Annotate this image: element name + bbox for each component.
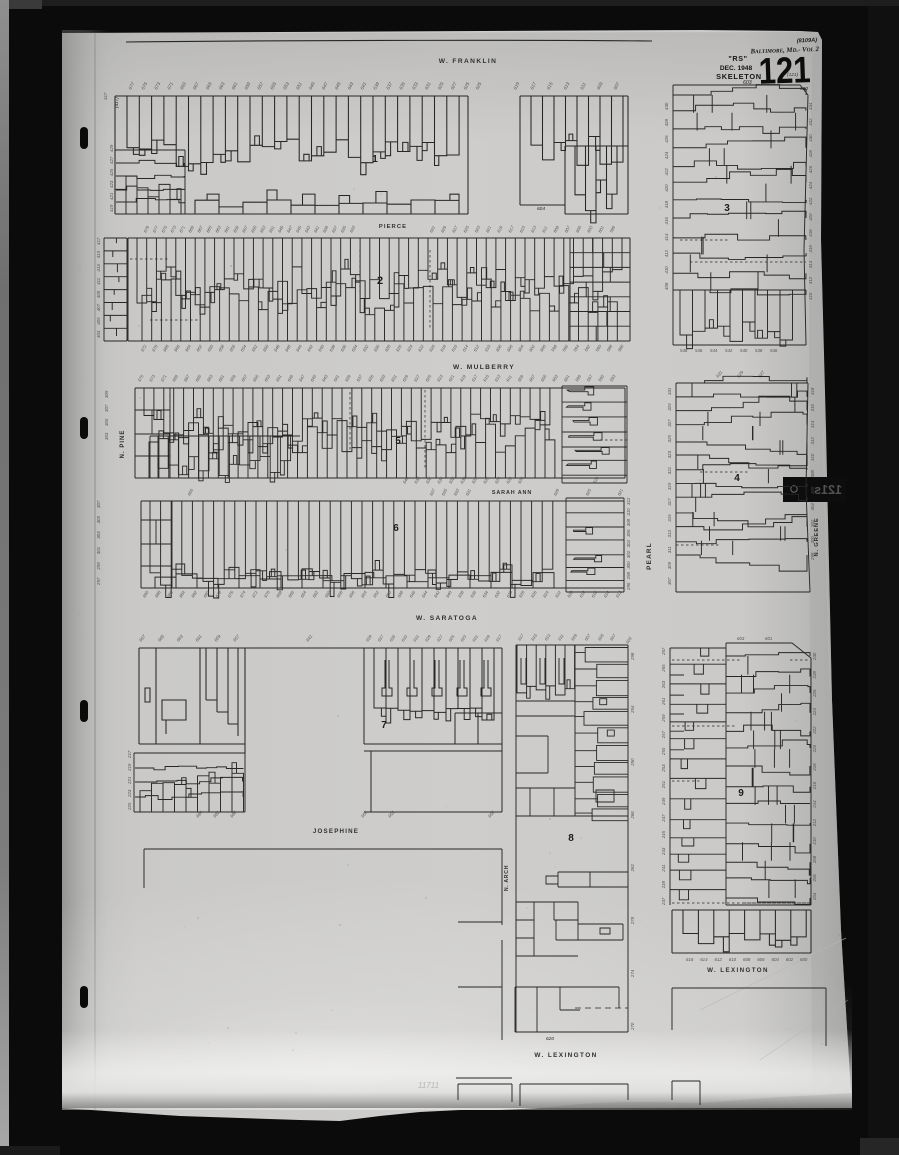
svg-text:429: 429 xyxy=(109,144,114,152)
svg-text:625: 625 xyxy=(462,81,470,91)
svg-text:635: 635 xyxy=(398,81,406,91)
svg-text:588: 588 xyxy=(606,343,614,352)
svg-text:661: 661 xyxy=(223,225,231,234)
svg-text:668: 668 xyxy=(162,343,170,352)
svg-text:656: 656 xyxy=(348,589,356,598)
svg-text:609: 609 xyxy=(596,81,604,91)
svg-text:613: 613 xyxy=(494,373,502,382)
svg-text:297: 297 xyxy=(96,577,101,586)
svg-text:542: 542 xyxy=(725,348,733,353)
svg-text:611: 611 xyxy=(557,633,565,641)
svg-text:321: 321 xyxy=(667,466,672,474)
svg-text:661: 661 xyxy=(217,374,225,383)
svg-text:616: 616 xyxy=(686,957,694,962)
svg-text:247: 247 xyxy=(661,814,666,823)
svg-text:637: 637 xyxy=(377,633,385,642)
svg-text:623: 623 xyxy=(473,224,481,233)
svg-text:621: 621 xyxy=(616,488,624,497)
svg-text:307: 307 xyxy=(667,577,672,585)
svg-text:278: 278 xyxy=(630,916,635,925)
svg-text:412: 412 xyxy=(808,276,813,284)
svg-text:W. SARATOGA: W. SARATOGA xyxy=(416,615,478,622)
svg-text:249: 249 xyxy=(661,797,666,806)
svg-text:599: 599 xyxy=(608,224,616,233)
svg-text:309: 309 xyxy=(104,390,109,398)
svg-text:678: 678 xyxy=(214,589,222,598)
svg-text:640: 640 xyxy=(445,589,453,598)
svg-text:430: 430 xyxy=(664,102,669,110)
svg-text:405: 405 xyxy=(96,317,101,325)
svg-text:651: 651 xyxy=(295,81,303,91)
svg-text:630: 630 xyxy=(373,343,381,352)
svg-text:403: 403 xyxy=(96,330,101,338)
svg-text:627: 627 xyxy=(757,369,766,378)
svg-text:636: 636 xyxy=(469,589,477,598)
svg-text:586: 586 xyxy=(617,343,625,352)
svg-text:308: 308 xyxy=(626,518,631,526)
svg-text:312: 312 xyxy=(626,497,631,505)
svg-text:661: 661 xyxy=(231,81,239,91)
svg-text:7: 7 xyxy=(381,720,387,731)
svg-text:635: 635 xyxy=(440,487,448,496)
svg-text:432: 432 xyxy=(808,118,813,126)
svg-text:680: 680 xyxy=(229,809,238,818)
svg-text:649: 649 xyxy=(308,81,316,91)
svg-text:3: 3 xyxy=(724,203,730,214)
svg-text:650: 650 xyxy=(262,343,270,352)
svg-text:659: 659 xyxy=(213,633,222,642)
svg-text:607: 607 xyxy=(563,224,571,233)
svg-text:204: 204 xyxy=(812,892,817,901)
svg-text:624: 624 xyxy=(494,475,502,484)
svg-text:W. LEXINGTON: W. LEXINGTON xyxy=(534,1052,597,1059)
svg-text:628: 628 xyxy=(518,589,526,598)
svg-text:409: 409 xyxy=(96,290,101,298)
svg-text:620: 620 xyxy=(546,1036,554,1042)
svg-text:644: 644 xyxy=(421,589,429,598)
svg-text:619: 619 xyxy=(512,81,520,91)
svg-text:651: 651 xyxy=(275,374,283,383)
svg-text:DEC. 1948: DEC. 1948 xyxy=(720,65,753,72)
svg-text:662: 662 xyxy=(311,589,319,598)
svg-text:672: 672 xyxy=(140,343,148,352)
svg-text:421: 421 xyxy=(109,192,114,200)
svg-text:671: 671 xyxy=(178,225,186,234)
svg-text:633: 633 xyxy=(400,633,408,642)
svg-text:310: 310 xyxy=(626,508,631,516)
svg-text:426: 426 xyxy=(664,135,669,143)
svg-text:299: 299 xyxy=(96,562,101,571)
svg-text:686: 686 xyxy=(166,589,174,598)
svg-text:612: 612 xyxy=(715,957,723,962)
svg-text:424: 424 xyxy=(808,181,813,189)
svg-text:653: 653 xyxy=(282,81,290,91)
svg-text:656: 656 xyxy=(360,809,369,818)
svg-text:294: 294 xyxy=(630,705,635,714)
svg-text:645: 645 xyxy=(295,224,303,233)
svg-text:657: 657 xyxy=(240,373,248,382)
svg-text:624: 624 xyxy=(542,589,550,598)
svg-text:651: 651 xyxy=(268,225,276,234)
svg-text:W. MULBERRY: W. MULBERRY xyxy=(453,364,515,371)
svg-text:655: 655 xyxy=(252,373,260,382)
svg-text:300: 300 xyxy=(810,536,815,544)
svg-text:669: 669 xyxy=(171,373,179,382)
svg-text:605: 605 xyxy=(597,632,605,641)
svg-text:303: 303 xyxy=(96,531,101,539)
svg-text:642: 642 xyxy=(433,589,441,598)
svg-text:613: 613 xyxy=(562,81,570,91)
svg-text:633: 633 xyxy=(411,81,419,91)
svg-text:11711: 11711 xyxy=(418,1081,439,1090)
svg-text:548: 548 xyxy=(680,348,688,353)
svg-text:620: 620 xyxy=(517,475,525,484)
svg-text:654: 654 xyxy=(239,343,247,352)
svg-text:W. LEXINGTON: W. LEXINGTON xyxy=(707,967,769,974)
svg-text:413: 413 xyxy=(96,264,101,272)
svg-text:607: 607 xyxy=(609,632,617,641)
svg-text:670: 670 xyxy=(263,589,271,598)
svg-text:639: 639 xyxy=(322,224,330,233)
svg-text:670: 670 xyxy=(151,343,159,352)
svg-text:631: 631 xyxy=(412,634,420,643)
svg-text:263: 263 xyxy=(661,680,666,689)
svg-text:325: 325 xyxy=(667,435,672,443)
svg-text:601: 601 xyxy=(765,636,773,641)
svg-text:625: 625 xyxy=(474,81,482,91)
svg-text:667: 667 xyxy=(196,224,204,233)
svg-text:665: 665 xyxy=(205,81,213,91)
svg-text:420: 420 xyxy=(808,213,813,221)
svg-text:629: 629 xyxy=(552,487,560,496)
svg-text:304: 304 xyxy=(626,540,631,548)
svg-text:626: 626 xyxy=(530,589,538,598)
svg-text:654: 654 xyxy=(360,589,368,598)
svg-text:657: 657 xyxy=(241,224,249,233)
svg-text:603: 603 xyxy=(737,636,745,641)
svg-text:PIERCE: PIERCE xyxy=(379,224,407,230)
svg-text:621: 621 xyxy=(471,634,479,643)
svg-text:602: 602 xyxy=(786,957,794,962)
svg-text:331: 331 xyxy=(667,387,672,395)
svg-text:420: 420 xyxy=(664,184,669,192)
svg-text:673: 673 xyxy=(148,373,156,382)
svg-text:614: 614 xyxy=(461,343,469,352)
svg-text:658: 658 xyxy=(336,589,344,598)
svg-text:690: 690 xyxy=(142,589,150,598)
svg-text:657: 657 xyxy=(232,633,241,642)
svg-text:536: 536 xyxy=(770,348,778,353)
svg-text:647: 647 xyxy=(286,224,294,233)
svg-text:640: 640 xyxy=(402,475,410,484)
svg-text:592: 592 xyxy=(583,343,591,352)
svg-text:609: 609 xyxy=(517,373,525,382)
svg-text:622: 622 xyxy=(417,343,425,352)
svg-text:224: 224 xyxy=(812,708,817,717)
svg-text:665: 665 xyxy=(205,224,213,233)
svg-text:603: 603 xyxy=(586,224,594,233)
svg-text:614: 614 xyxy=(700,957,708,962)
svg-text:265: 265 xyxy=(661,664,666,673)
svg-text:631: 631 xyxy=(715,369,724,378)
svg-text:310: 310 xyxy=(810,453,815,461)
svg-text:684: 684 xyxy=(195,809,204,818)
svg-text:430: 430 xyxy=(808,134,813,142)
svg-text:241: 241 xyxy=(661,864,666,873)
svg-text:590: 590 xyxy=(594,343,602,352)
svg-text:649: 649 xyxy=(286,373,294,382)
svg-text:639: 639 xyxy=(344,373,352,382)
svg-text:632: 632 xyxy=(493,589,501,598)
svg-text:598: 598 xyxy=(550,343,558,352)
svg-text:652: 652 xyxy=(387,809,396,818)
svg-text:206: 206 xyxy=(812,874,817,883)
svg-text:243: 243 xyxy=(661,847,666,856)
svg-text:408: 408 xyxy=(664,282,669,290)
svg-text:604: 604 xyxy=(517,343,525,352)
svg-text:634: 634 xyxy=(350,343,358,352)
svg-text:626: 626 xyxy=(395,343,403,352)
svg-text:307: 307 xyxy=(104,404,109,412)
svg-text:607: 607 xyxy=(612,81,620,91)
svg-text:596: 596 xyxy=(561,343,569,352)
svg-text:620: 620 xyxy=(566,589,574,598)
svg-text:636: 636 xyxy=(339,343,347,352)
svg-text:626: 626 xyxy=(482,475,490,484)
svg-text:230: 230 xyxy=(812,652,817,661)
svg-text:303: 303 xyxy=(104,432,109,440)
svg-text:411: 411 xyxy=(96,277,101,285)
svg-text:305: 305 xyxy=(104,418,109,426)
svg-text:407: 407 xyxy=(96,304,101,312)
svg-text:631: 631 xyxy=(390,374,398,383)
svg-text:257: 257 xyxy=(661,730,666,739)
svg-text:4: 4 xyxy=(734,473,740,484)
svg-text:317: 317 xyxy=(667,498,672,506)
svg-text:663: 663 xyxy=(218,81,226,91)
svg-text:663: 663 xyxy=(206,373,214,382)
svg-text:676: 676 xyxy=(227,589,235,598)
svg-text:9: 9 xyxy=(738,788,744,799)
svg-text:W. FRANKLIN: W. FRANKLIN xyxy=(439,58,498,65)
svg-text:315: 315 xyxy=(667,514,672,522)
svg-text:662: 662 xyxy=(195,343,203,352)
svg-text:682: 682 xyxy=(212,809,221,818)
svg-text:414: 414 xyxy=(808,260,813,268)
svg-text:610: 610 xyxy=(729,957,737,962)
svg-text:N. PINE: N. PINE xyxy=(120,430,126,459)
svg-text:593: 593 xyxy=(609,373,617,382)
svg-text:597: 597 xyxy=(586,373,594,382)
svg-text:647: 647 xyxy=(298,373,306,382)
svg-text:639: 639 xyxy=(365,633,373,642)
svg-text:251: 251 xyxy=(661,780,666,789)
svg-text:621: 621 xyxy=(485,225,493,234)
svg-text:642: 642 xyxy=(306,343,314,352)
svg-text:255: 255 xyxy=(661,747,666,756)
svg-text:300: 300 xyxy=(626,561,631,569)
svg-text:422: 422 xyxy=(808,197,813,205)
svg-text:641: 641 xyxy=(359,81,367,91)
svg-text:622: 622 xyxy=(554,589,562,598)
svg-text:637: 637 xyxy=(428,487,436,496)
svg-text:306: 306 xyxy=(626,529,631,537)
svg-text:544: 544 xyxy=(710,348,718,353)
svg-text:SARAH ANN: SARAH ANN xyxy=(492,490,532,496)
svg-text:618: 618 xyxy=(578,589,586,598)
svg-text:417: 417 xyxy=(96,237,101,245)
svg-text:312: 312 xyxy=(810,437,815,445)
svg-text:410: 410 xyxy=(808,292,813,300)
svg-text:629: 629 xyxy=(736,369,745,378)
svg-text:314: 314 xyxy=(810,420,815,428)
svg-text:680: 680 xyxy=(202,589,210,598)
svg-text:305: 305 xyxy=(96,516,101,524)
svg-text:616: 616 xyxy=(590,589,598,598)
svg-text:606: 606 xyxy=(506,343,514,352)
svg-text:(417): (417) xyxy=(114,97,119,108)
svg-text:2: 2 xyxy=(377,275,383,287)
svg-text:601: 601 xyxy=(563,374,571,383)
svg-text:425: 425 xyxy=(109,168,114,176)
svg-text:657: 657 xyxy=(256,81,264,91)
svg-text:615: 615 xyxy=(546,81,554,91)
svg-text:306: 306 xyxy=(810,486,815,494)
svg-text:327: 327 xyxy=(667,419,672,427)
svg-text:643: 643 xyxy=(346,81,354,91)
svg-text:633: 633 xyxy=(348,224,356,233)
svg-text:422: 422 xyxy=(664,168,669,176)
svg-text:646: 646 xyxy=(408,589,416,598)
svg-text:638: 638 xyxy=(413,475,421,484)
svg-text:627: 627 xyxy=(450,81,458,91)
svg-text:603: 603 xyxy=(551,373,559,382)
svg-text:SKELETON: SKELETON xyxy=(716,72,762,81)
svg-text:627: 627 xyxy=(451,224,459,233)
svg-text:424: 424 xyxy=(664,151,669,159)
svg-text:679: 679 xyxy=(142,224,150,233)
svg-text:434: 434 xyxy=(808,102,813,110)
svg-text:602: 602 xyxy=(528,343,536,352)
svg-text:656: 656 xyxy=(228,343,236,352)
svg-text:412: 412 xyxy=(664,249,669,257)
svg-text:641: 641 xyxy=(305,633,314,642)
svg-text:609: 609 xyxy=(570,632,578,641)
svg-text:428: 428 xyxy=(808,150,813,158)
svg-text:634: 634 xyxy=(436,475,444,484)
svg-text:641: 641 xyxy=(332,374,340,383)
svg-text:631: 631 xyxy=(428,225,436,234)
svg-text:418: 418 xyxy=(664,200,669,208)
svg-text:221: 221 xyxy=(127,776,132,785)
svg-text:416: 416 xyxy=(664,217,669,225)
svg-text:302: 302 xyxy=(810,519,815,527)
svg-text:237: 237 xyxy=(661,897,666,906)
svg-text:600: 600 xyxy=(800,957,808,962)
svg-text:210: 210 xyxy=(812,837,817,846)
svg-text:616: 616 xyxy=(450,343,458,352)
svg-text:1: 1 xyxy=(372,154,378,165)
svg-text:607: 607 xyxy=(528,373,536,382)
svg-text:675: 675 xyxy=(160,224,168,233)
svg-text:667: 667 xyxy=(183,373,191,382)
svg-text:667: 667 xyxy=(192,81,200,91)
svg-text:653: 653 xyxy=(263,373,271,382)
svg-text:628: 628 xyxy=(384,343,392,352)
svg-text:649: 649 xyxy=(277,224,285,233)
svg-text:223: 223 xyxy=(127,789,132,798)
svg-text:546: 546 xyxy=(695,348,703,353)
svg-text:307: 307 xyxy=(96,500,101,508)
svg-text:419: 419 xyxy=(109,204,114,212)
svg-text:623: 623 xyxy=(436,373,444,382)
svg-text:644: 644 xyxy=(295,343,303,352)
svg-text:617: 617 xyxy=(507,224,515,233)
svg-text:671: 671 xyxy=(160,374,168,383)
svg-text:628: 628 xyxy=(471,475,479,484)
svg-text:N. ARCH: N. ARCH xyxy=(504,865,510,891)
svg-text:621: 621 xyxy=(447,374,455,383)
svg-text:301: 301 xyxy=(96,546,101,554)
svg-text:645: 645 xyxy=(309,373,317,382)
svg-text:302: 302 xyxy=(626,550,631,558)
svg-text:423: 423 xyxy=(109,180,114,188)
svg-text:673: 673 xyxy=(153,81,161,91)
svg-text:675: 675 xyxy=(137,373,145,382)
svg-text:650: 650 xyxy=(487,809,496,818)
svg-text:663: 663 xyxy=(176,633,185,642)
svg-text:6: 6 xyxy=(393,523,399,534)
svg-text:613: 613 xyxy=(530,224,538,233)
svg-text:"RS": "RS" xyxy=(728,54,747,63)
svg-text:611: 611 xyxy=(505,374,513,382)
svg-text:282: 282 xyxy=(630,864,635,873)
svg-text:629: 629 xyxy=(440,224,448,233)
svg-text:428: 428 xyxy=(664,119,669,127)
svg-text:286: 286 xyxy=(630,811,635,820)
svg-text:675: 675 xyxy=(140,81,148,91)
svg-text:313: 313 xyxy=(667,530,672,538)
svg-text:222: 222 xyxy=(812,726,817,735)
svg-text:655: 655 xyxy=(269,81,277,91)
svg-text:669: 669 xyxy=(187,224,195,233)
svg-text:665: 665 xyxy=(157,633,166,642)
svg-text:600: 600 xyxy=(539,343,547,352)
svg-text:647: 647 xyxy=(321,81,329,91)
svg-text:316: 316 xyxy=(810,404,815,412)
svg-text:613: 613 xyxy=(543,632,551,641)
svg-text:426: 426 xyxy=(808,165,813,173)
svg-text:619: 619 xyxy=(496,224,504,233)
svg-text:615: 615 xyxy=(518,224,526,233)
svg-text:643: 643 xyxy=(321,373,329,382)
svg-text:664: 664 xyxy=(184,343,192,352)
svg-text:617: 617 xyxy=(529,81,537,91)
svg-text:627: 627 xyxy=(413,373,421,382)
svg-text:677: 677 xyxy=(151,224,159,233)
svg-text:608: 608 xyxy=(495,343,503,352)
svg-text:677: 677 xyxy=(127,81,135,91)
svg-text:(8109A): (8109A) xyxy=(797,37,818,44)
svg-text:660: 660 xyxy=(206,343,214,352)
svg-text:659: 659 xyxy=(243,81,251,91)
svg-text:216: 216 xyxy=(812,781,817,790)
svg-text:609: 609 xyxy=(552,224,560,233)
svg-text:607: 607 xyxy=(583,632,591,641)
svg-text:611: 611 xyxy=(579,81,587,90)
svg-text:417: 417 xyxy=(103,92,108,100)
svg-text:617: 617 xyxy=(471,373,479,382)
